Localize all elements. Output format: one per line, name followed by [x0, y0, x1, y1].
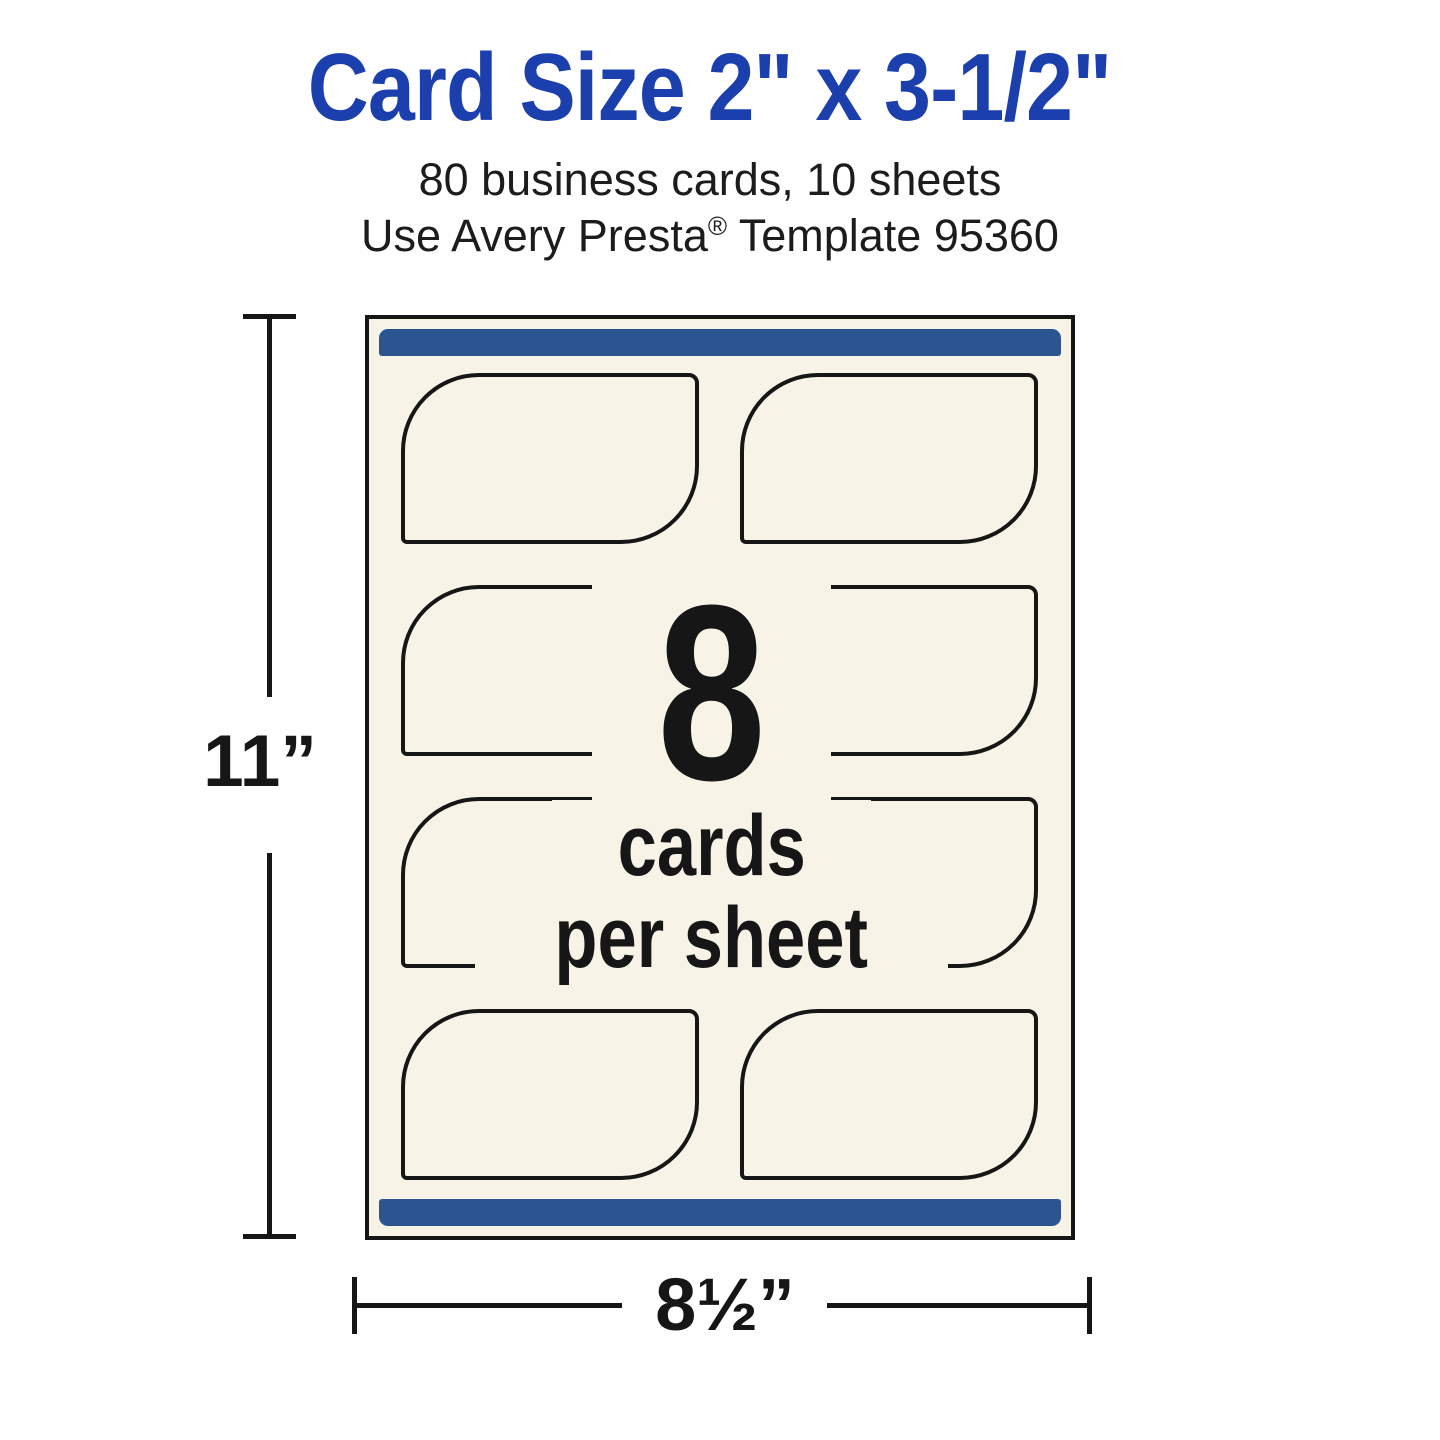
card-outline — [740, 373, 1038, 544]
card-outline — [740, 1009, 1038, 1180]
height-dimension-cap-bottom — [243, 1234, 296, 1239]
width-dimension-cap-right — [1087, 1277, 1092, 1334]
cards-per-sheet-number-line: 8 — [592, 585, 831, 800]
card-outline — [401, 1009, 699, 1180]
subtitle-template-prefix: Use Avery Presta — [361, 210, 708, 261]
subtitle-counts: 80 business cards, 10 sheets — [0, 153, 1420, 207]
page-title: Card Size 2" x 3-1/2" — [0, 38, 1420, 138]
width-dimension-label: 8½” — [620, 1258, 830, 1352]
cards-per-sheet-word-line-1: cards — [552, 800, 872, 892]
sheet-diagram: 8 cards per sheet — [365, 315, 1075, 1240]
page-title-text: Card Size 2" x 3-1/2" — [308, 38, 1112, 138]
registered-mark: ® — [708, 211, 727, 241]
height-dimension-line-upper — [267, 316, 272, 697]
per-sheet-word: per sheet — [555, 892, 869, 984]
width-dimension-cap-left — [352, 1277, 357, 1334]
product-illustration: Card Size 2" x 3-1/2" 80 business cards,… — [0, 0, 1440, 1440]
subtitle-template: Use Avery Presta® Template 95360 — [0, 209, 1420, 263]
height-dimension-cap-top — [243, 314, 296, 319]
subtitle-template-suffix: Template 95360 — [727, 210, 1059, 261]
cards-per-sheet-word-line-2: per sheet — [475, 892, 947, 984]
cards-per-sheet-number: 8 — [657, 585, 765, 800]
cards-per-sheet-label: 8 cards per sheet — [369, 585, 1054, 984]
sheet-top-strip — [379, 329, 1061, 356]
width-dimension-line-right — [827, 1303, 1092, 1308]
width-dimension-line-left — [352, 1303, 622, 1308]
sheet-bottom-strip — [379, 1199, 1061, 1226]
height-dimension-label: 11” — [195, 715, 325, 809]
card-outline — [401, 373, 699, 544]
height-dimension-line-lower — [267, 853, 272, 1238]
cards-word: cards — [617, 800, 805, 892]
